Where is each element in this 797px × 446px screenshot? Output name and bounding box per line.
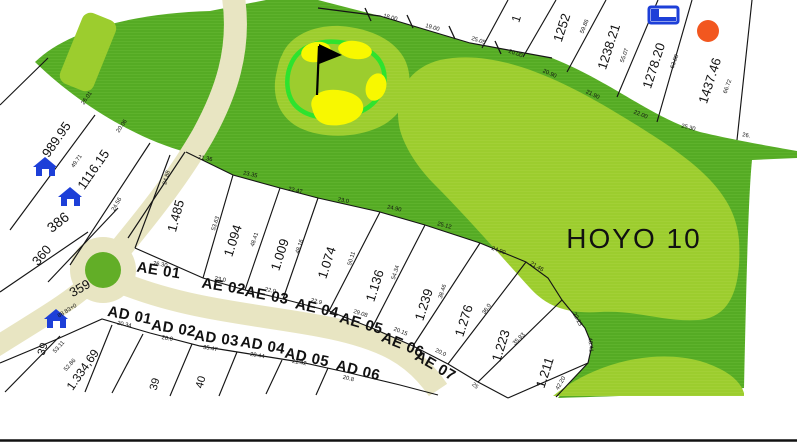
lot-line [112,334,143,393]
parcel-area-label: 386 [44,208,72,235]
parcel-area-label: 1 [509,13,524,24]
house-icon [58,187,82,206]
parcel-area-label: 1.009 [268,237,292,273]
parcel-area-label: 1.094 [221,223,245,259]
measurement-label: 25 [470,382,479,391]
measurement-label: 20.8 [342,375,354,384]
measurement-label: 48.16 [295,239,305,255]
measurement-label: 26. [742,132,751,139]
measurement-label: 35.47 [203,345,218,353]
parcel-area-label: 1238.21 [594,22,623,71]
measurement-label: 54.34 [391,264,401,280]
measurement-label: 40.41 [586,337,593,352]
lot-line [266,360,282,394]
measurement-label: 38.46 [438,284,448,300]
measurement-label: 66.72 [723,79,734,95]
measurement-label: 35.93 [512,332,527,347]
hole-label: HOYO 10 [566,223,701,254]
parcel-area-label: 1252 [550,12,573,44]
measurement-label: 55.07 [620,48,631,64]
lot-line [219,352,237,396]
location-marker-icon [697,20,719,42]
parcel-area-label: 1278.20 [639,41,668,90]
lot-line [737,0,752,140]
measurement-label: 23.0 [337,197,349,205]
street-label: AD 05 [283,345,331,371]
parcel-area-label: 360 [29,242,54,268]
lot-line [316,368,328,395]
measurement-label: 48.41 [250,232,260,248]
lot-line [0,58,48,105]
golf-subdivision-map: 989.951116.153863603591.334,693939401.48… [0,0,797,446]
parcel-area-label: 1437.46 [695,56,724,105]
parcel-area-label: 1.136 [363,268,387,304]
parcel-area-label: 1.211 [533,355,557,390]
parcel-area-label: 1116.15 [74,147,112,193]
measurement-label: 21.42 [292,359,307,367]
parcel-area-label: 1.223 [489,328,513,364]
measurement-label: 36.0 [481,303,492,316]
measurement-label: 63.88 [670,54,681,70]
parcel-area-label: 989.95 [39,119,74,160]
site-map-canvas: 989.951116.153863603591.334,693939401.48… [0,0,797,446]
lot-line [170,344,192,396]
parcel-area-label: 39 [36,341,51,356]
measurement-label: 49.71 [71,154,84,169]
lot-line [523,0,556,57]
parcel-area-label: 40 [194,375,209,390]
measurement-label: 20.44 [250,352,266,361]
street-label: AD 02 [150,317,197,341]
parcel-area-label: 1.074 [315,245,339,281]
fairway-area [398,57,739,320]
roundabout-island [85,252,121,288]
road-west [0,290,82,348]
measurement-label: 20.0 [161,335,173,343]
lot-line [245,188,280,290]
measurement-label: 53.63 [211,216,221,232]
parcel-area-label: 39 [148,377,163,392]
building-icon [649,7,678,23]
house-icon [33,157,57,176]
